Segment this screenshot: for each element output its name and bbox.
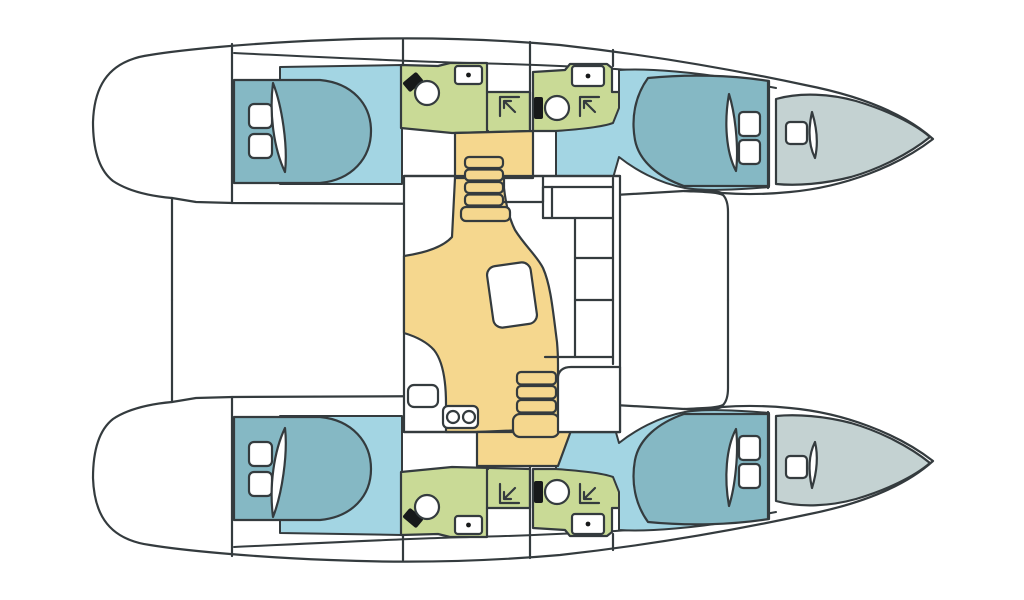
floor-plan-page (0, 0, 1024, 600)
stair-step (517, 400, 556, 413)
stair-step (517, 372, 556, 385)
stairs-to-port-hull (461, 157, 510, 221)
stair-step (465, 195, 503, 206)
salon-counter (558, 367, 620, 432)
dining-table (486, 261, 538, 329)
stair-step (461, 207, 510, 221)
galley-faucet-icon (447, 411, 459, 423)
stair-step (513, 414, 559, 437)
galley-appliance (408, 385, 438, 407)
salon (404, 131, 620, 466)
stair-step (517, 386, 556, 399)
stair-step (465, 170, 503, 181)
stair-step (465, 157, 503, 168)
stair-step (465, 182, 503, 193)
galley-faucet-icon (463, 411, 475, 423)
stairs-to-starboard-hull (513, 372, 559, 437)
catamaran-floor-plan (0, 0, 1024, 600)
